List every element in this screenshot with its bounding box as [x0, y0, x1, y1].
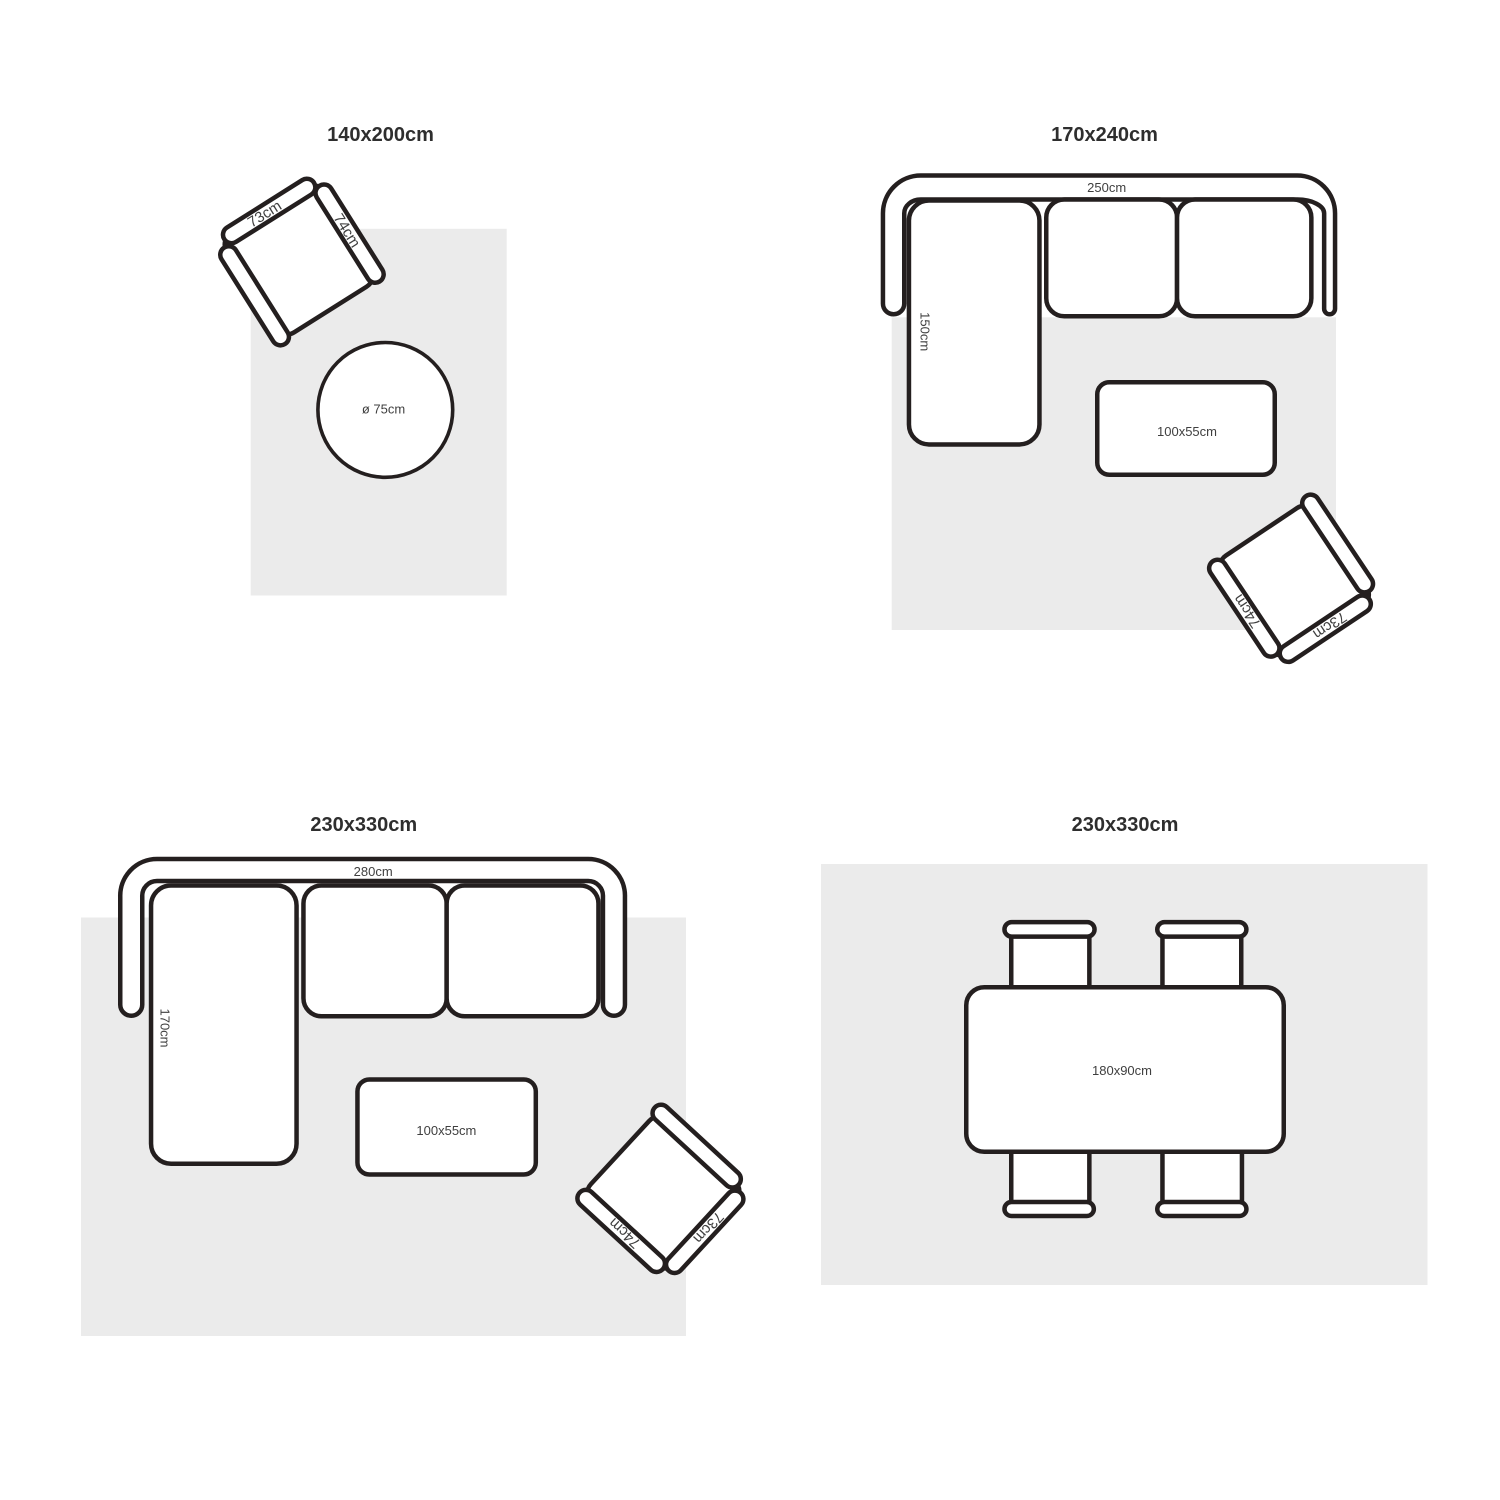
svg-text:150cm: 150cm	[918, 312, 933, 351]
svg-text:230x330cm: 230x330cm	[310, 814, 417, 836]
svg-text:100x55cm: 100x55cm	[416, 1123, 476, 1138]
svg-text:140x200cm: 140x200cm	[327, 124, 434, 146]
svg-text:250cm: 250cm	[1087, 180, 1126, 195]
svg-text:180x90cm: 180x90cm	[1092, 1063, 1152, 1078]
svg-text:170x240cm: 170x240cm	[1051, 124, 1158, 146]
svg-text:100x55cm: 100x55cm	[1157, 424, 1217, 439]
svg-text:280cm: 280cm	[354, 864, 393, 879]
svg-text:ø 75cm: ø 75cm	[362, 402, 405, 417]
svg-text:170cm: 170cm	[158, 1008, 173, 1047]
svg-text:230x330cm: 230x330cm	[1072, 814, 1179, 836]
